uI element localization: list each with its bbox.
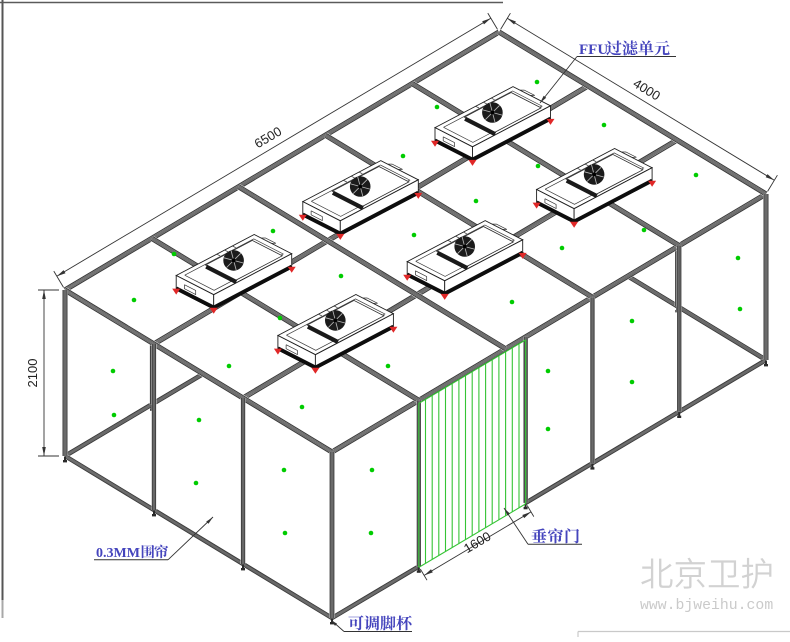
svg-text:FFU: FFU	[579, 42, 608, 58]
svg-text:2100: 2100	[25, 359, 40, 388]
svg-text:www.bjweihu.com: www.bjweihu.com	[640, 598, 773, 614]
svg-text:0.3MM: 0.3MM	[96, 546, 140, 561]
